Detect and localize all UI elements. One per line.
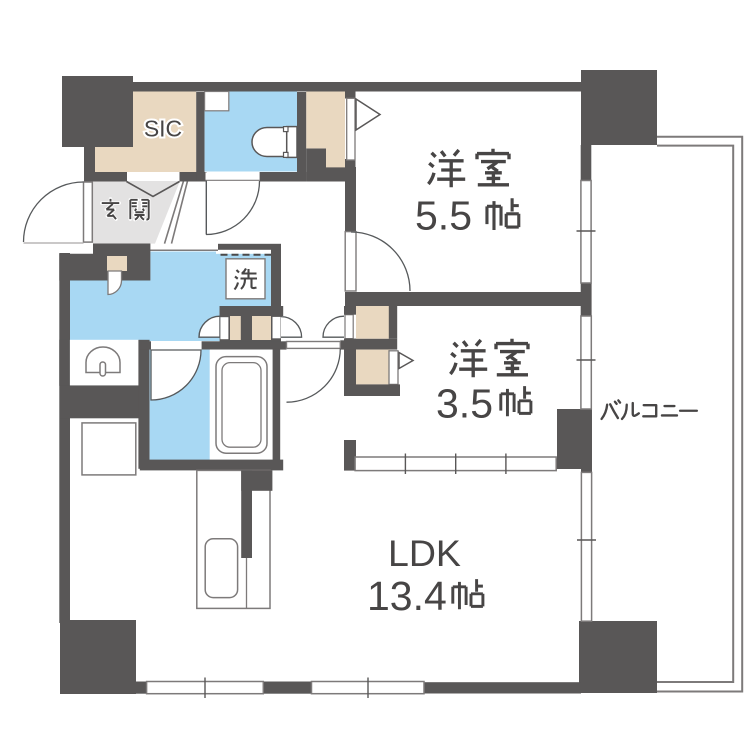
svg-text:5.5: 5.5 (415, 192, 472, 238)
svg-text:13.4: 13.4 (367, 573, 447, 619)
svg-text:LDK: LDK (388, 532, 461, 574)
svg-text:3.5: 3.5 (436, 381, 493, 427)
svg-text:SIC: SIC (144, 116, 182, 142)
